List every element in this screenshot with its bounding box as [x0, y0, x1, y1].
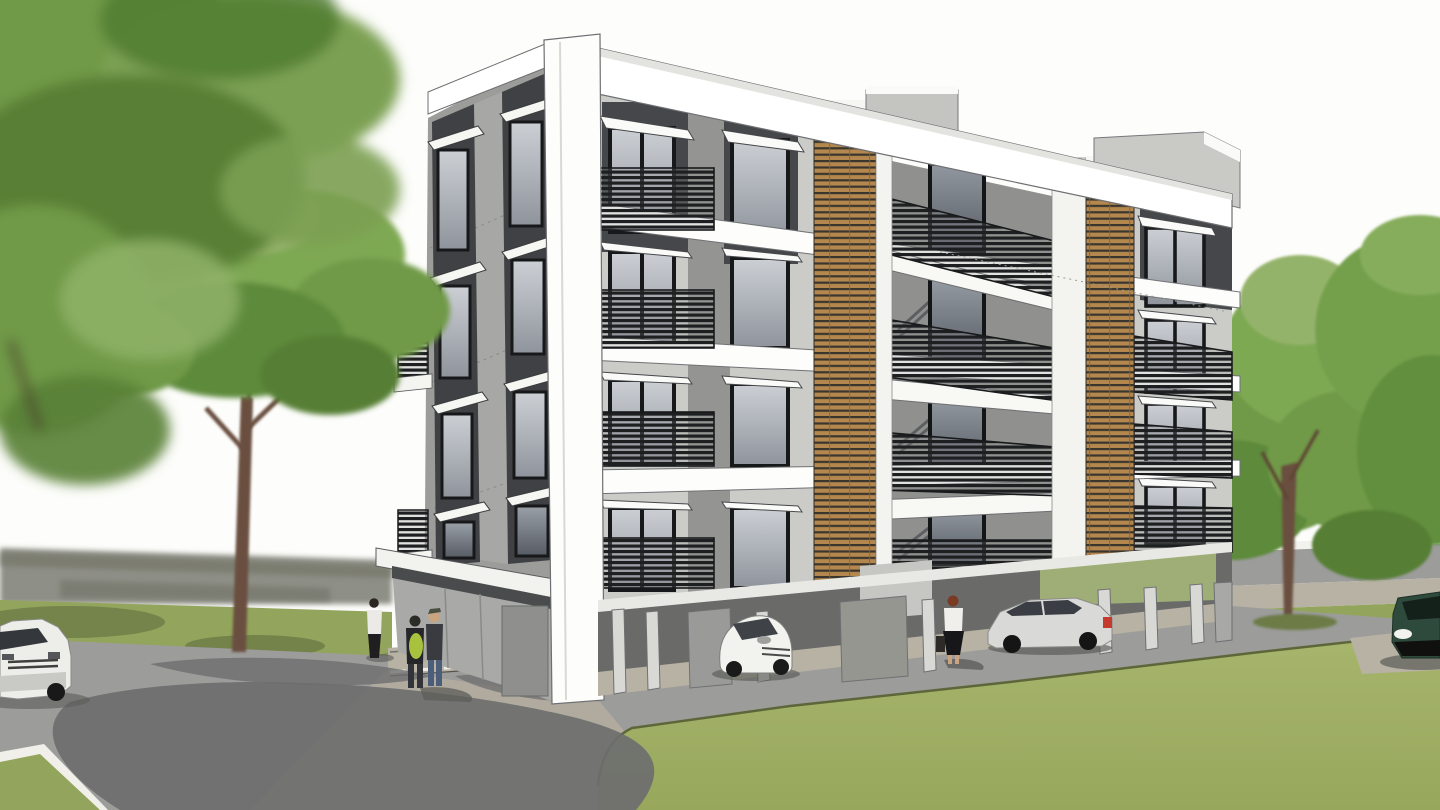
suv-headlight: [1394, 629, 1412, 639]
woman-head: [948, 596, 959, 607]
green-backpack: [409, 633, 423, 659]
louvre2-white-pier: [1052, 158, 1086, 562]
rendering-canvas: [0, 0, 1440, 810]
city-car-headlight: [757, 636, 771, 644]
ground-door-panel: [502, 606, 548, 696]
left-car-wheel: [47, 683, 65, 701]
handbag: [936, 636, 945, 652]
right-tree-shadow: [1253, 614, 1337, 630]
woman-left-head: [369, 598, 379, 608]
left-car-headlight-1: [2, 654, 14, 660]
timber-louvre-screen-2: [1052, 156, 1134, 562]
sedan-taillight: [1103, 617, 1112, 628]
suv-grille: [1394, 640, 1440, 656]
sedan-wheel-1: [1003, 635, 1021, 653]
woman-blouse: [944, 608, 963, 631]
city-car-wheel-2: [773, 659, 789, 675]
corner-pilaster: [544, 34, 604, 704]
architectural-rendering: [0, 0, 1440, 810]
left-car-headlight-2: [48, 652, 60, 659]
timber-louvre-screen-1: [814, 100, 892, 588]
stair-core-wall: [840, 596, 908, 682]
woman-left-top: [367, 610, 382, 634]
left-windows-1: [438, 150, 474, 558]
woman-left-pants: [368, 634, 381, 658]
city-car-wheel-1: [726, 661, 742, 677]
louvre1-white-pier: [876, 106, 892, 586]
sedan-wheel-2: [1079, 632, 1097, 650]
